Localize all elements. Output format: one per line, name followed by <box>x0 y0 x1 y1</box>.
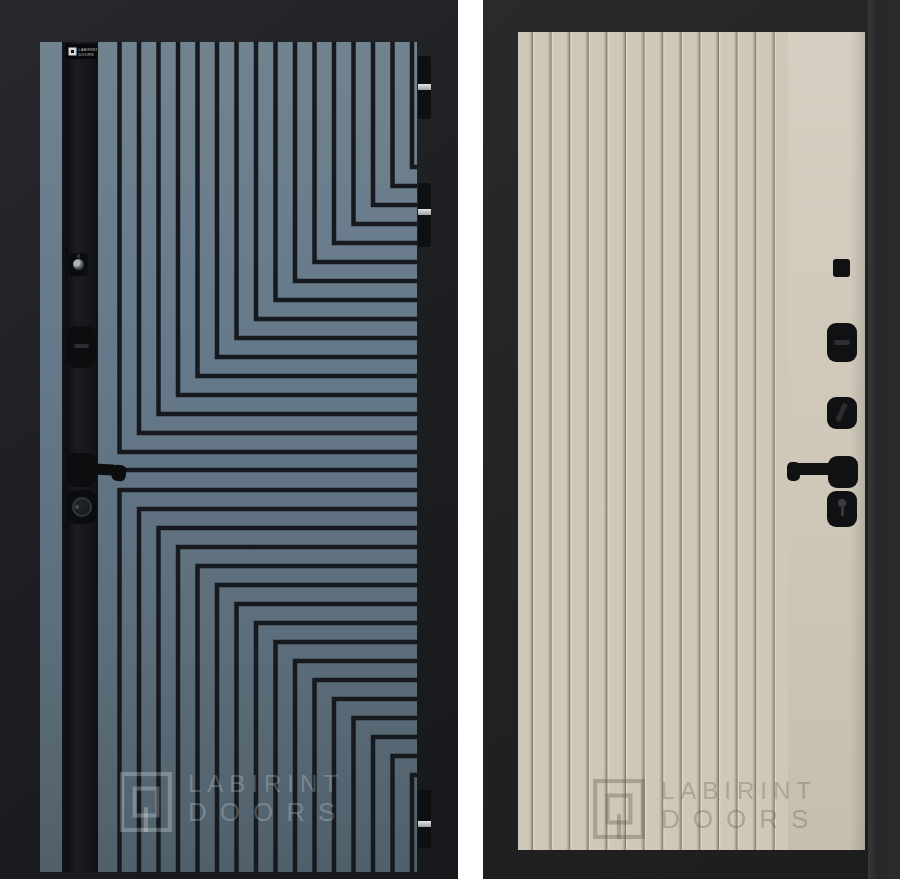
key-cylinder-plate <box>827 491 857 527</box>
keyhole-cylinder-icon <box>69 253 88 276</box>
key-slot <box>841 505 844 516</box>
thumbturn-slot <box>834 340 850 345</box>
brand-plate-logo-inner <box>71 50 74 53</box>
door-left-panel: LABIRINT DOORS <box>40 42 417 872</box>
lock-knob <box>67 490 97 524</box>
right-handle-lever-tip <box>787 462 800 481</box>
hinge-upper-middle <box>418 183 431 247</box>
brand-plate-text-1: LABIRINT <box>79 48 98 52</box>
keyhole-face <box>73 259 84 270</box>
hinge-band <box>418 821 431 827</box>
door-edge-strip <box>868 0 900 879</box>
fluted-grooves <box>518 32 788 850</box>
hinge-bottom <box>418 790 431 848</box>
hinge-band <box>418 209 431 215</box>
plain-panel-shading <box>788 32 865 850</box>
nightlatch-turn-knob <box>835 403 847 422</box>
thumbturn-plate <box>827 323 857 362</box>
keyhole-pin <box>77 254 80 258</box>
labyrinth-pattern <box>40 42 417 872</box>
door-left-exterior: LABIRINT DOORS LABIRI <box>0 0 458 879</box>
hinge-top <box>418 56 431 119</box>
door-right-interior: LABIRINT DOORS <box>483 0 900 879</box>
thumbturn-escutcheon <box>67 326 96 368</box>
nightlatch-turn-plate <box>827 397 857 429</box>
thumbturn-slot <box>74 344 89 348</box>
peephole-icon <box>833 259 850 277</box>
brand-plate: LABIRINT DOORS <box>66 44 97 59</box>
door-right-panel <box>518 32 865 850</box>
brand-plate-text-2: DOORS <box>79 53 95 57</box>
lock-knob-dot <box>75 505 79 509</box>
hinge-band <box>418 84 431 90</box>
left-handle-lever-tip <box>111 464 127 482</box>
